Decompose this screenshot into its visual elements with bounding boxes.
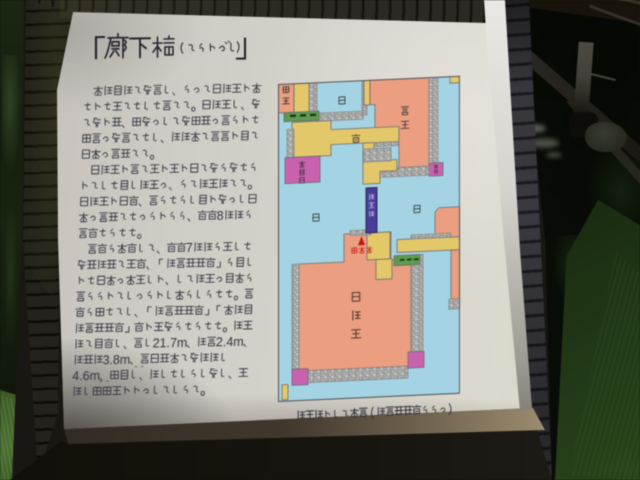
svg-text:4.6m: 4.6m [72, 369, 100, 383]
svg-text:7: 7 [186, 241, 194, 255]
svg-text:3.8m: 3.8m [102, 353, 130, 367]
svg-text:21.7m: 21.7m [152, 336, 187, 351]
svg-text:8: 8 [216, 209, 224, 223]
svg-text:2.4m: 2.4m [216, 335, 244, 349]
